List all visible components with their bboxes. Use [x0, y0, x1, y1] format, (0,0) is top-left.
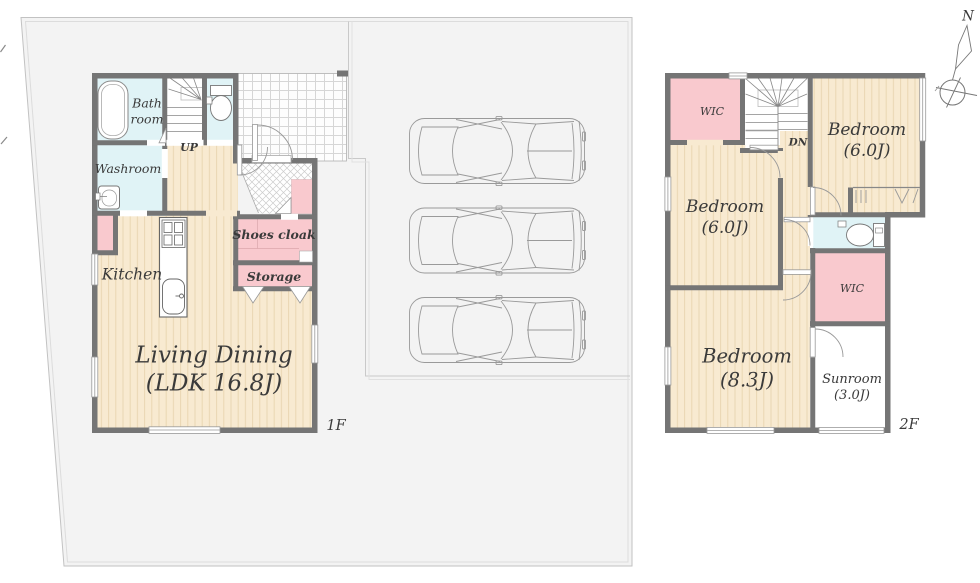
label-stairs-down: DN — [789, 136, 808, 149]
label-living-dining: Living Dining (LDK 16.8J) — [135, 342, 292, 397]
label-bedroom-northeast: Bedroom (6.0J) — [828, 120, 906, 163]
label-bathroom: Bath room — [131, 95, 164, 126]
label-floor2: 2F — [899, 416, 918, 434]
label-stairs-up: UP — [180, 141, 198, 155]
label-bedroom-south: Bedroom (8.3J) — [702, 345, 792, 394]
label-floor1: 1F — [326, 417, 345, 435]
label-washroom: Washroom — [95, 161, 162, 177]
label-shoes-cloak: Shoes cloak — [232, 227, 315, 243]
floor-plan-drawing — [0, 0, 980, 583]
kitchen-sink-icon — [163, 279, 185, 314]
hallway-2f — [780, 131, 810, 290]
label-bedroom-west: Bedroom (6.0J) — [686, 197, 764, 240]
washroom-sink-icon — [96, 186, 120, 209]
label-sunroom: Sunroom (3.0J) — [822, 372, 882, 405]
floor-plan-canvas: Bath room Washroom UP Kitchen Living Din… — [0, 0, 980, 583]
label-storage: Storage — [247, 269, 302, 285]
stairs-up — [167, 76, 203, 143]
entrance-counter — [292, 180, 313, 214]
bathtub-icon — [98, 81, 128, 139]
label-wic-left: WIC — [700, 105, 724, 119]
label-wic-right: WIC — [840, 282, 864, 296]
label-kitchen: Kitchen — [102, 265, 163, 284]
kitchen-counter-icon — [160, 218, 188, 318]
compass-icon — [935, 26, 977, 108]
label-compass-north: N — [962, 9, 974, 26]
hallway-1f — [167, 145, 238, 216]
stove-icon — [162, 220, 185, 248]
boundary-tick-icon — [1, 45, 8, 144]
